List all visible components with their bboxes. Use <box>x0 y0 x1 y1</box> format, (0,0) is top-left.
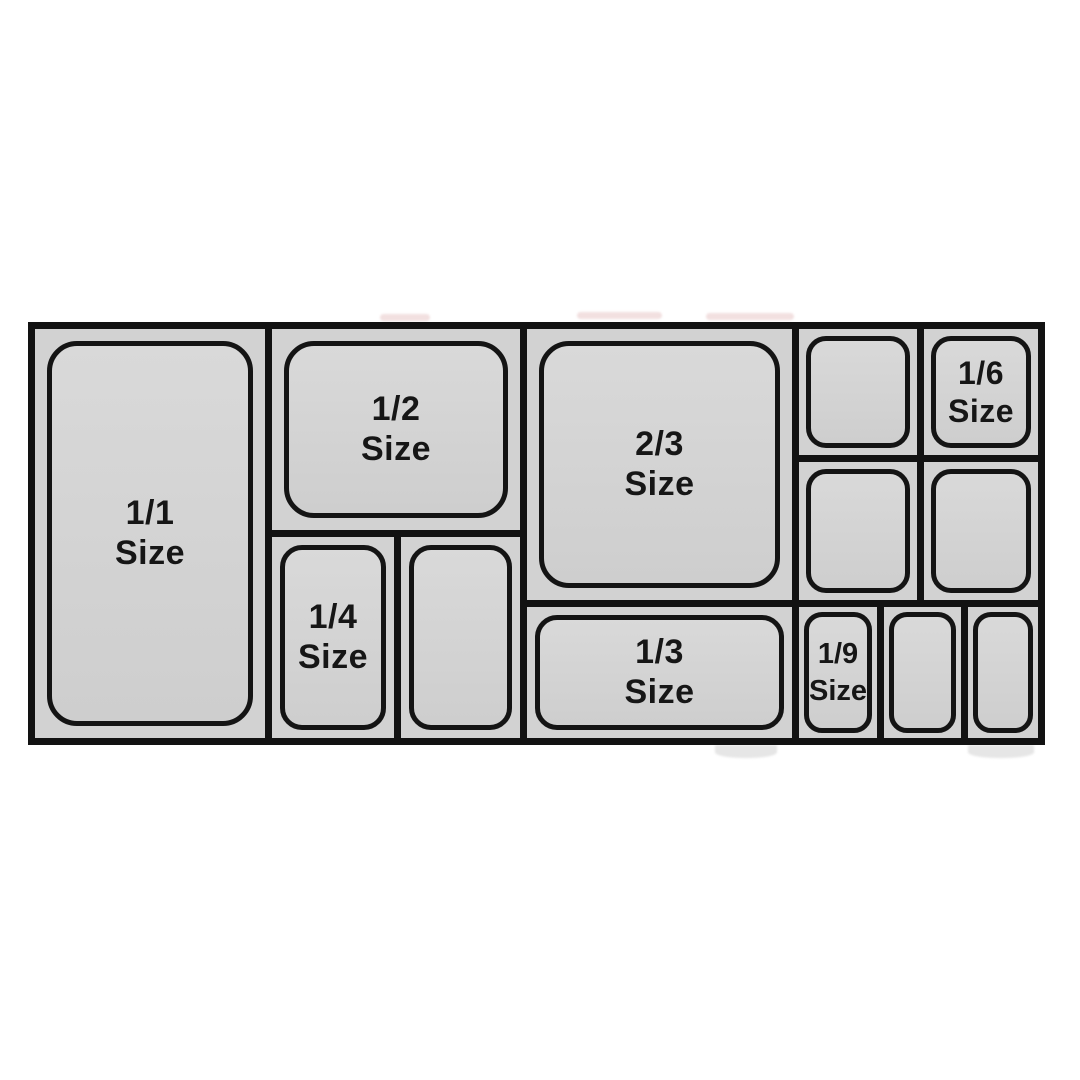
pan-size-diagram-page: 1/1 Size 1/2 Size <box>0 0 1080 1080</box>
pan-1-4: 1/4 Size <box>280 545 386 730</box>
cell-1-9-unlabeled-b <box>968 607 1038 738</box>
cell-1-6-unlabeled-c <box>924 462 1038 600</box>
pan-label-size-word: Size <box>361 430 431 468</box>
cell-2-3: 2/3 Size <box>527 329 792 600</box>
pan-label-fraction: 1/6 <box>958 355 1004 391</box>
photo-artifact <box>715 745 777 758</box>
sixth-row-1: 1/6 Size <box>799 329 1038 455</box>
cell-1-6: 1/6 Size <box>924 329 1038 455</box>
cell-1-3: 1/3 Size <box>527 607 792 738</box>
pan-1-2: 1/2 Size <box>284 341 508 518</box>
column-full-size: 1/1 Size <box>35 329 265 738</box>
pan-1-1: 1/1 Size <box>47 341 253 726</box>
pan-1-1-label: 1/1 Size <box>115 494 185 572</box>
pan-1-9-label: 1/9 Size <box>809 636 867 709</box>
pan-label-fraction: 1/9 <box>818 638 858 670</box>
pan-label-fraction: 2/3 <box>635 425 684 463</box>
cell-1-6-unlabeled-b <box>799 462 917 600</box>
pan-1-6-label: 1/6 Size <box>948 354 1014 431</box>
cell-1-4-unlabeled <box>401 537 520 738</box>
pan-2-3: 2/3 Size <box>539 341 780 588</box>
ninth-row: 1/9 Size <box>799 607 1038 738</box>
pan-1-2-label: 1/2 Size <box>361 390 431 468</box>
cell-1-9-unlabeled-a <box>884 607 961 738</box>
cell-1-9: 1/9 Size <box>799 607 877 738</box>
pan-label-fraction: 1/2 <box>372 390 421 428</box>
column-half-quarter: 1/2 Size 1/4 Size <box>272 329 520 738</box>
photo-artifact <box>968 745 1034 758</box>
column-two-thirds: 2/3 Size 1/3 Size <box>527 329 792 738</box>
pan-label-fraction: 1/3 <box>635 633 684 671</box>
pan-1-3: 1/3 Size <box>535 615 784 730</box>
pan-2-3-label: 2/3 Size <box>624 425 694 503</box>
pan-1-6-unlabeled-c <box>931 469 1031 593</box>
photo-artifact <box>706 313 794 320</box>
cell-1-6-unlabeled-a <box>799 329 917 455</box>
pan-1-6: 1/6 Size <box>931 336 1031 448</box>
pan-label-size-word: Size <box>624 673 694 711</box>
photo-artifact <box>380 314 430 321</box>
pan-label-size-word: Size <box>624 465 694 503</box>
pan-1-6-unlabeled-b <box>806 469 910 593</box>
pan-1-9: 1/9 Size <box>804 612 872 733</box>
cell-1-2: 1/2 Size <box>272 329 520 530</box>
cell-1-4: 1/4 Size <box>272 537 394 738</box>
pan-label-size-word: Size <box>948 393 1014 429</box>
pan-label-size-word: Size <box>298 638 368 676</box>
pan-1-9-unlabeled-b <box>973 612 1033 733</box>
pan-label-size-word: Size <box>115 534 185 572</box>
pan-1-9-unlabeled-a <box>889 612 956 733</box>
pan-label-size-word: Size <box>809 675 867 707</box>
pan-1-3-label: 1/3 Size <box>624 633 694 711</box>
sixth-row-2 <box>799 462 1038 600</box>
pan-1-6-unlabeled-a <box>806 336 910 448</box>
pan-label-fraction: 1/4 <box>309 598 358 636</box>
pan-size-board: 1/1 Size 1/2 Size <box>28 322 1045 745</box>
pan-1-4-label: 1/4 Size <box>298 598 368 676</box>
pan-label-fraction: 1/1 <box>126 494 175 532</box>
photo-artifact <box>577 312 662 319</box>
cell-1-1: 1/1 Size <box>35 329 265 738</box>
pan-1-4-unlabeled <box>409 545 512 730</box>
quarter-row: 1/4 Size <box>272 537 520 738</box>
column-sixth-ninth: 1/6 Size 1/9 <box>799 329 1038 738</box>
